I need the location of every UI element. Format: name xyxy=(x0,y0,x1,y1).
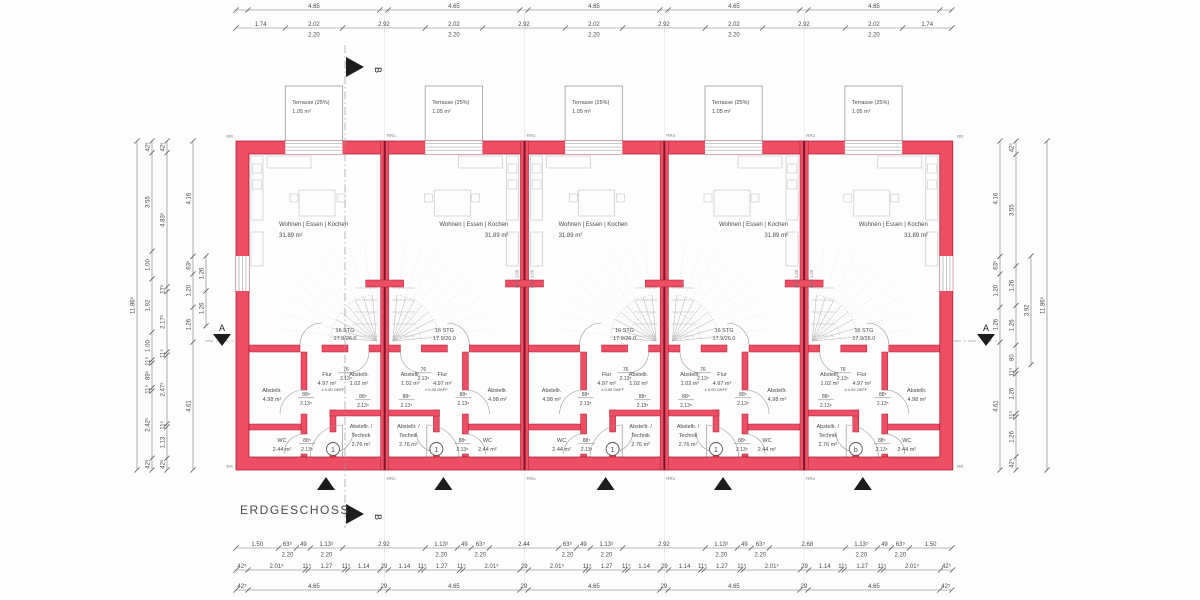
interior-wall xyxy=(742,454,748,457)
hall-label: Flur xyxy=(438,372,448,378)
rr-mark-top: RRo xyxy=(666,133,675,138)
party-wall-stub xyxy=(785,280,823,287)
technik-label: Technik xyxy=(399,433,418,439)
stair-fan-upper xyxy=(672,298,760,341)
door-size-denominator: 2.13⁵ xyxy=(820,403,832,409)
dim-bottom-openings-value: 2.44 xyxy=(518,542,530,548)
rr-mark-top: RRo xyxy=(387,133,396,138)
interior-wall xyxy=(322,345,348,352)
stair-tread-line xyxy=(393,312,429,341)
storage-label: Abstellr. xyxy=(767,388,787,394)
dim-top-axis-value: 4.65 xyxy=(728,4,740,10)
door-size-numerator: 88⁵ xyxy=(359,394,367,400)
section-a-label-right: A xyxy=(983,323,989,333)
dim-bottom-openings-value: 49 xyxy=(300,542,307,548)
stair-fan-upper xyxy=(812,298,900,341)
technik-label: Abstellr. / xyxy=(397,424,420,430)
storage-area: 4.98 m² xyxy=(768,397,787,403)
door-size-numerator: 88⁵ xyxy=(403,394,411,400)
floor-plan-sheet: Terrasse (25%)1.05 m²Terrasse (25%)1.05 … xyxy=(0,0,1200,600)
living-room-area: 31.89 m² xyxy=(485,233,509,239)
dim-top-openings-sub-value: 2.20 xyxy=(448,32,460,38)
dining-table xyxy=(299,190,335,216)
dim-bottom-detail-value: 1.27 xyxy=(601,564,613,570)
chair xyxy=(704,194,712,202)
dim-left-3-value: 63⁵ xyxy=(186,260,193,270)
dim-bottom-openings-sub-value: 2.20 xyxy=(436,552,448,558)
dim-left-3-value: 1.26 xyxy=(187,318,193,330)
dim-top-axis-value: 4.65 xyxy=(308,4,320,10)
stair-tread-line xyxy=(393,305,422,341)
wc-label: WC xyxy=(557,438,566,444)
dim-left-2-value: 1.13 xyxy=(161,436,167,448)
door-size-numerator: 88⁵ xyxy=(879,392,887,398)
technik-label: Technik xyxy=(679,433,698,439)
terrace-label: Terrasse (25%) xyxy=(292,100,329,106)
door-size-numerator: 88⁵ xyxy=(738,438,746,444)
dim-bottom-openings-value: 49 xyxy=(741,542,748,548)
interior-wall xyxy=(462,454,468,457)
rr-mark-top: RRo xyxy=(806,133,815,138)
stair-steps-label: 16 STG xyxy=(854,328,873,334)
dim-bottom-openings-sub-value: 2.20 xyxy=(716,552,728,558)
dim-right-2-value: 11⁵ xyxy=(1009,367,1016,376)
rr-mark-bottom: RRu xyxy=(527,476,536,481)
interior-wall xyxy=(808,345,820,352)
dim-bottom-axis-value: 4.65 xyxy=(448,584,460,590)
dim-top-axis-value: 4.65 xyxy=(448,4,460,10)
door-size-numerator: 88⁵ xyxy=(639,394,647,400)
storage-area: 4.98 m² xyxy=(907,397,926,403)
interior-wall xyxy=(701,345,727,352)
dim-bottom-detail-value: 2.01⁵ xyxy=(270,563,285,570)
storage-area: 4.98 m² xyxy=(542,397,561,403)
door-size-denominator: 2.13⁵ xyxy=(400,403,412,409)
dim-bottom-axis-value: 29 xyxy=(521,584,528,590)
kitchen-run xyxy=(878,156,922,168)
door-size-denominator: 2.13⁵ xyxy=(837,376,849,382)
dim-top-openings-value: 2.92 xyxy=(518,22,530,28)
sill-height-tag: BRH 1.00 xyxy=(794,269,799,288)
dim-bottom-detail-value: 1.14 xyxy=(679,564,691,570)
dim-right-3-value: 3.92 xyxy=(1025,304,1031,316)
section-a-label-left: A xyxy=(219,323,225,333)
storage-label: Abstellr. xyxy=(488,388,508,394)
dim-bottom-detail-value: 1.27 xyxy=(856,564,868,570)
door-size-denominator: 2.13⁵ xyxy=(300,401,312,407)
dim-bottom-openings-value: 63⁵ xyxy=(896,541,906,548)
dim-top-openings-sub-value: 2.20 xyxy=(588,32,600,38)
rr-mark-bottom: RRu xyxy=(806,476,815,481)
dim-left-2-value: 17⁵ xyxy=(160,284,167,294)
kitchen-run xyxy=(547,156,591,168)
unit-4-geometry xyxy=(668,156,800,470)
hall-label: Flur xyxy=(717,372,727,378)
interior-wall xyxy=(421,345,447,352)
stair-fan-upper xyxy=(393,244,405,341)
dim-left-3-value: 4.61 xyxy=(187,400,193,412)
interior-wall xyxy=(889,345,940,352)
unit-number: 1 xyxy=(714,447,718,454)
interior-wall xyxy=(742,414,748,434)
technik-label: Technik xyxy=(631,433,650,439)
door-size-numerator: 88⁵ xyxy=(582,392,590,398)
dim-right-1-value: 1.20 xyxy=(994,284,1000,296)
entrance-marker-triangle xyxy=(714,477,732,490)
interior-wall xyxy=(389,345,401,352)
unit-number: 1 xyxy=(331,447,335,454)
interior-wall xyxy=(888,424,940,430)
dim-left-1-value: 11⁵ xyxy=(145,385,152,394)
dim-left-1-value: 3.55 xyxy=(146,195,152,207)
dim-bottom-detail-value: 29 xyxy=(801,564,808,570)
storage-label: Abstellr. xyxy=(907,388,927,394)
stair-arc xyxy=(816,295,858,337)
interior-wall xyxy=(369,345,381,352)
living-room-area: 31.89 m² xyxy=(279,233,303,239)
door-size-denominator: 2.13⁵ xyxy=(456,447,468,453)
living-room-label: Wohnen | Essen | Kochen xyxy=(439,222,508,228)
section-b-label-bottom: B xyxy=(373,514,383,520)
dim-bottom-detail-value: 1.27 xyxy=(321,564,333,570)
stair-ratio-label: 17.9/26.0 xyxy=(613,336,636,342)
section-a-arrow-right xyxy=(977,334,995,346)
stair-fan-upper xyxy=(393,298,481,341)
wc-label: WC xyxy=(762,438,771,444)
dim-bottom-openings-sub-value: 2.20 xyxy=(321,552,333,558)
dim-right-2-value: 80 xyxy=(1010,354,1016,361)
dim-bottom-detail-value: 1.27 xyxy=(436,564,448,570)
storage-small-area: 1.02 m² xyxy=(629,381,648,387)
sill-height-tag: BRH 1.00 xyxy=(809,269,814,288)
dim-left-2-value: 42⁵ xyxy=(160,142,167,152)
dim-left-total-value: 11.86⁵ xyxy=(130,296,137,314)
terrace-area: 1.05 m² xyxy=(712,109,731,115)
stair-fan-upper xyxy=(672,244,684,341)
dining-table xyxy=(579,190,615,216)
party-wall-stub xyxy=(366,280,404,287)
entrance-marker-triangle xyxy=(597,477,615,490)
sill-height-tag: BRH 1.00 xyxy=(515,269,520,288)
door-size-denominator: 2.13⁵ xyxy=(301,447,313,453)
wc-area: 2.44 m² xyxy=(478,447,497,453)
door-swing xyxy=(300,323,322,345)
stair-fan-upper xyxy=(559,329,656,341)
interior-wall xyxy=(841,345,867,352)
living-room-label: Wohnen | Essen | Kochen xyxy=(559,222,628,228)
unit-3-geometry xyxy=(529,156,661,470)
dim-right-1-value: 4.61 xyxy=(994,400,1000,412)
floor-level-tag: ± 0.00 OKFF xyxy=(844,387,867,392)
terrace-label: Terrasse (25%) xyxy=(712,100,749,106)
door-size-numerator: 76 xyxy=(700,367,706,373)
interior-wall xyxy=(602,345,628,352)
interior-wall xyxy=(748,424,800,430)
floor-level-tag: ± 0.00 OKFF xyxy=(601,387,624,392)
dim-left-1-value: 42⁵ xyxy=(145,459,152,469)
dim-bottom-openings-value: 1.13⁵ xyxy=(714,541,729,548)
interior-wall xyxy=(249,424,301,430)
dim-left-1-value: 89⁵ xyxy=(145,370,152,380)
interior-wall xyxy=(610,410,661,416)
storage-area: 4.98 m² xyxy=(263,397,282,403)
chair xyxy=(424,194,432,202)
interior-wall xyxy=(581,352,587,390)
interior-wall xyxy=(529,345,580,352)
door-size-denominator: 2.13⁵ xyxy=(736,447,748,453)
door-size-numerator: 88⁵ xyxy=(303,438,311,444)
appliance xyxy=(788,180,797,189)
section-b-arrow-top xyxy=(346,57,364,77)
dim-left-3-value: 1.20 xyxy=(187,284,193,296)
floor-level-tag: ± 0.00 OKFF xyxy=(705,387,728,392)
stair-steps-label: 16 STG xyxy=(615,328,634,334)
dim-bottom-openings-value: 2.68 xyxy=(801,542,813,548)
dim-top-openings-value: 2.02 xyxy=(728,22,740,28)
dim-bottom-detail-value: 11⁵ xyxy=(737,563,746,570)
dim-bottom-openings-value: 49 xyxy=(461,542,468,548)
door-size-numerator: 88⁵ xyxy=(822,394,830,400)
dim-bottom-detail-value: 1.14 xyxy=(819,564,831,570)
appliance xyxy=(927,180,936,189)
interior-wall xyxy=(389,410,440,416)
technik-area: 2.76 m² xyxy=(679,442,698,448)
dim-bottom-axis-value: 4.65 xyxy=(308,584,320,590)
dim-top-openings-value: 1.74 xyxy=(921,22,933,28)
party-wall-core xyxy=(663,141,665,470)
dim-bottom-openings-value: 63⁵ xyxy=(756,541,766,548)
stair-tread-line xyxy=(672,305,701,341)
door-size-numerator: 76 xyxy=(623,367,629,373)
dim-top-openings-value: 2.02 xyxy=(308,22,320,28)
unit-5-geometry xyxy=(808,156,940,470)
dim-right-2-value: 3.55 xyxy=(1010,204,1016,216)
chair xyxy=(844,194,852,202)
storage-label: Abstellr. xyxy=(542,388,562,394)
door-swing xyxy=(628,352,649,373)
dim-bottom-detail-value: 29 xyxy=(381,564,388,570)
dim-right-1-value: 1.26 xyxy=(994,318,1000,330)
terrace-label: Terrasse (25%) xyxy=(852,100,889,106)
dim-right-2-value: 1.26 xyxy=(1010,430,1016,442)
dim-bottom-detail-value: 42⁵ xyxy=(942,563,952,570)
wc-label: WC xyxy=(902,438,911,444)
terrace-door-opening xyxy=(425,141,482,154)
dim-bottom-detail-value: 11⁵ xyxy=(342,563,351,570)
interior-wall xyxy=(462,352,468,390)
dim-bottom-axis-value: 42⁵ xyxy=(237,583,247,590)
dim-top-axis-value: 4.65 xyxy=(868,4,880,10)
door-size-denominator: 2.13⁵ xyxy=(340,376,352,382)
dim-bottom-detail-value: 11⁵ xyxy=(302,563,311,570)
dining-table xyxy=(854,190,890,216)
party-wall-stub xyxy=(506,280,544,287)
party-wall-core xyxy=(803,141,805,470)
stair-steps-label: 16 STG xyxy=(715,328,734,334)
living-room-area: 31.89 m² xyxy=(904,233,928,239)
chair xyxy=(617,194,625,202)
dim-bottom-openings-value: 1.13⁵ xyxy=(319,541,334,548)
dim-left-1-value: 11⁵ xyxy=(145,357,152,366)
terrace-door-opening xyxy=(705,141,762,154)
party-wall-stub xyxy=(645,280,683,287)
dim-bottom-detail-value: 1.14 xyxy=(358,564,370,570)
dim-bottom-openings-value: 63⁵ xyxy=(476,541,486,548)
door-swing xyxy=(400,352,421,373)
rr-mark: RR xyxy=(957,134,964,139)
dim-bottom-axis-value: 4.65 xyxy=(868,584,880,590)
door-size-denominator: 2.13⁵ xyxy=(680,403,692,409)
dim-bottom-openings-value: 49 xyxy=(881,542,888,548)
dim-top-axis-value: 4.65 xyxy=(588,4,600,10)
dim-top-openings-value: 2.92 xyxy=(378,22,390,28)
interior-wall xyxy=(469,345,520,352)
door-size-numerator: 76 xyxy=(343,367,349,373)
interior-wall xyxy=(468,424,520,430)
dim-left-1-value: 2.42⁵ xyxy=(145,417,152,432)
appliance xyxy=(788,164,797,173)
dim-bottom-openings-sub-value: 2.20 xyxy=(895,552,907,558)
dim-bottom-openings-value: 1.13⁵ xyxy=(854,541,869,548)
technik-label: Technik xyxy=(352,433,371,439)
sill-height-tag: BRH 1.00 xyxy=(530,269,535,288)
dim-bottom-openings-sub-value: 2.20 xyxy=(601,552,613,558)
dim-bottom-detail-value: 1.14 xyxy=(638,564,650,570)
unit-number: 1 xyxy=(611,447,615,454)
dim-bottom-openings-value: 1.50 xyxy=(251,542,263,548)
dim-bottom-detail-value: 1.14 xyxy=(398,564,410,570)
door-swing xyxy=(580,323,602,345)
dim-bottom-detail-value: 2.01⁵ xyxy=(905,563,920,570)
dim-bottom-detail-value: 11⁵ xyxy=(418,563,427,570)
storage-small-area: 1.02 m² xyxy=(350,381,369,387)
sofa xyxy=(531,232,543,266)
technik-label: Abstellr. / xyxy=(677,424,700,430)
living-room-area: 31.89 m² xyxy=(764,233,788,239)
dim-bottom-openings-sub-value: 2.20 xyxy=(856,552,868,558)
door-size-denominator: 2.13⁵ xyxy=(457,401,469,407)
chair xyxy=(471,194,479,202)
living-room-label: Wohnen | Essen | Kochen xyxy=(859,222,928,228)
door-size-denominator: 2.13⁵ xyxy=(697,376,709,382)
door-size-denominator: 2.13⁵ xyxy=(580,401,592,407)
door-size-numerator: 88⁵ xyxy=(878,438,886,444)
dim-top-openings-value: 2.02 xyxy=(588,22,600,28)
dim-left-1-value: 42⁵ xyxy=(145,142,152,152)
dim-bottom-openings-sub-value: 2.20 xyxy=(282,552,294,558)
door-size-denominator: 2.13⁵ xyxy=(581,447,593,453)
dim-bottom-openings-value: 1.50 xyxy=(925,542,937,548)
outer-wall xyxy=(236,141,953,470)
door-size-numerator: 88⁵ xyxy=(739,392,747,398)
door-swing xyxy=(820,352,841,373)
dim-left-2-value: 4.83⁵ xyxy=(160,212,167,227)
hall-label: Flur xyxy=(602,372,612,378)
dim-left-2-value: 11⁵ xyxy=(160,349,167,358)
stair-tread-line xyxy=(812,305,841,341)
plan-title: ERDGESCHOSS xyxy=(240,503,350,517)
interior-wall xyxy=(301,454,307,457)
dim-left-2-value: 2.47⁵ xyxy=(160,382,167,397)
interior-wall xyxy=(249,345,300,352)
terrace-door-opening xyxy=(845,141,902,154)
sofa xyxy=(251,232,263,266)
dim-bottom-detail-value: 1.27 xyxy=(716,564,728,570)
appliance xyxy=(532,164,541,173)
kitchen-run xyxy=(738,156,782,168)
technik-label: Abstellr. / xyxy=(350,424,373,430)
dim-bottom-openings-value: 49 xyxy=(580,542,587,548)
dim-top-openings-value: 1.74 xyxy=(255,22,267,28)
stair-tread-line xyxy=(812,312,848,341)
technik-label: Abstellr. / xyxy=(816,424,839,430)
door-size-numerator: 88⁵ xyxy=(682,394,690,400)
living-room-label: Wohnen | Essen | Kochen xyxy=(279,222,348,228)
terrace-door-opening xyxy=(565,141,622,154)
dim-right-1-value: 63⁵ xyxy=(993,260,1000,270)
dim-right-2-value: 1.26 xyxy=(1010,279,1016,291)
interior-wall xyxy=(882,352,888,390)
dim-left-3-value: 4.16 xyxy=(187,192,193,204)
technik-area: 2.76 m² xyxy=(818,442,837,448)
technik-area: 2.76 m² xyxy=(399,442,418,448)
hall-label: Flur xyxy=(857,372,867,378)
chair xyxy=(337,194,345,202)
door-size-denominator: 2.13⁵ xyxy=(417,376,429,382)
dim-right-1-value: 4.16 xyxy=(994,192,1000,204)
unit-2-geometry xyxy=(389,156,521,470)
kitchen-run xyxy=(267,156,311,168)
door-size-denominator: 2.13⁵ xyxy=(737,401,749,407)
appliance xyxy=(253,164,262,173)
stair-fan-upper xyxy=(393,253,436,341)
chair xyxy=(891,194,899,202)
door-size-denominator: 2.13⁵ xyxy=(357,403,369,409)
door-swing xyxy=(680,352,701,373)
interior-wall xyxy=(668,345,680,352)
floor-level-tag: ± 0.00 OKFF xyxy=(425,387,448,392)
interior-wall xyxy=(808,410,859,416)
dim-top-openings-value: 2.92 xyxy=(798,22,810,28)
door-size-denominator: 2.13⁵ xyxy=(877,401,889,407)
dim-right-2-value: 1.26 xyxy=(1010,319,1016,331)
storage-area: 4.98 m² xyxy=(488,397,507,403)
rr-mark: RR xyxy=(227,464,234,469)
dim-bottom-detail-value: 29 xyxy=(521,564,528,570)
stair-fan-upper xyxy=(279,329,376,341)
interior-wall xyxy=(462,414,468,434)
door-swing xyxy=(348,352,369,373)
interior-wall xyxy=(581,414,587,434)
dim-top-openings-sub-value: 2.20 xyxy=(868,32,880,38)
wc-area: 2.44 m² xyxy=(758,447,777,453)
dim-bottom-openings-value: 63⁵ xyxy=(563,541,573,548)
interior-wall xyxy=(668,410,719,416)
dim-bottom-openings-value: 2.92 xyxy=(658,542,670,548)
living-room-area: 31.89 m² xyxy=(559,233,583,239)
dim-top-openings-value: 2.92 xyxy=(658,22,670,28)
kitchen-run xyxy=(458,156,502,168)
interior-wall xyxy=(301,414,307,434)
dim-bottom-axis-value: 4.65 xyxy=(588,584,600,590)
stair-ratio-label: 17.9/26.0 xyxy=(852,336,875,342)
dim-right-2-value: 42⁵ xyxy=(1009,458,1016,468)
dim-bottom-openings-value: 2.92 xyxy=(378,542,390,548)
dim-bottom-detail-value: 29 xyxy=(661,564,668,570)
wc-label: WC xyxy=(483,438,492,444)
terrace-label: Terrasse (25%) xyxy=(572,100,609,106)
stair-tread-line xyxy=(672,312,708,341)
